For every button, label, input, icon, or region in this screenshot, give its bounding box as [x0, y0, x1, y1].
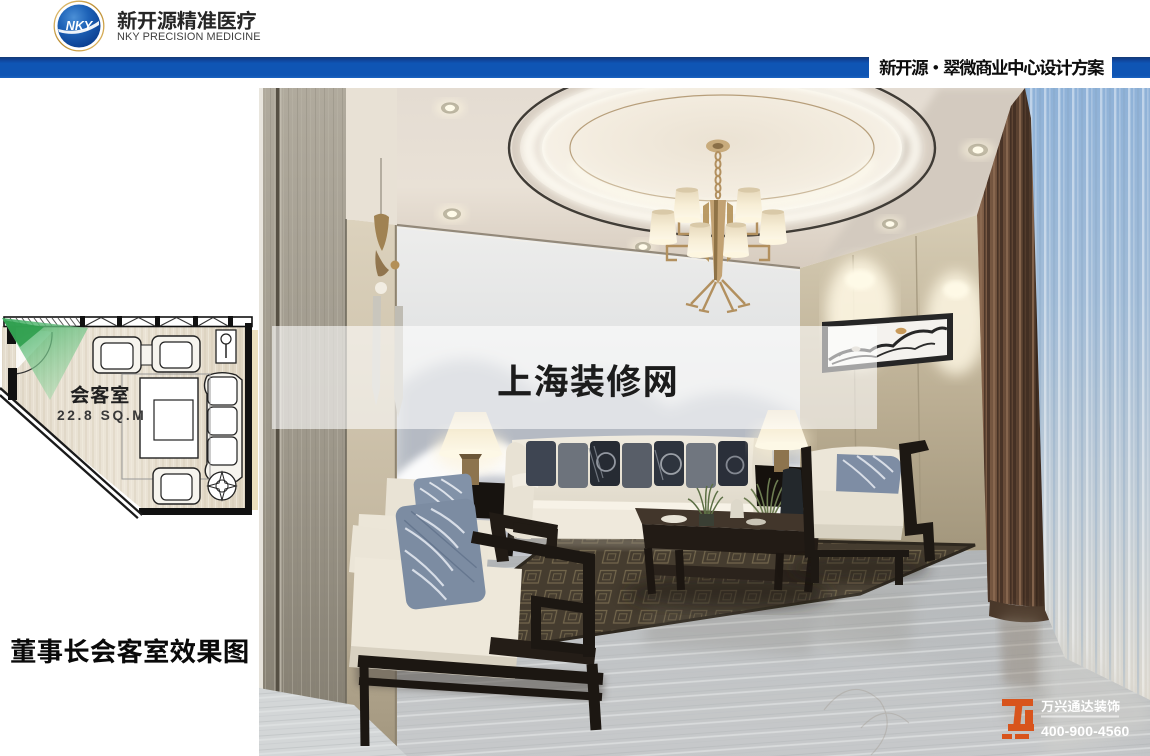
svg-text:400-900-4560: 400-900-4560 — [1041, 723, 1129, 739]
